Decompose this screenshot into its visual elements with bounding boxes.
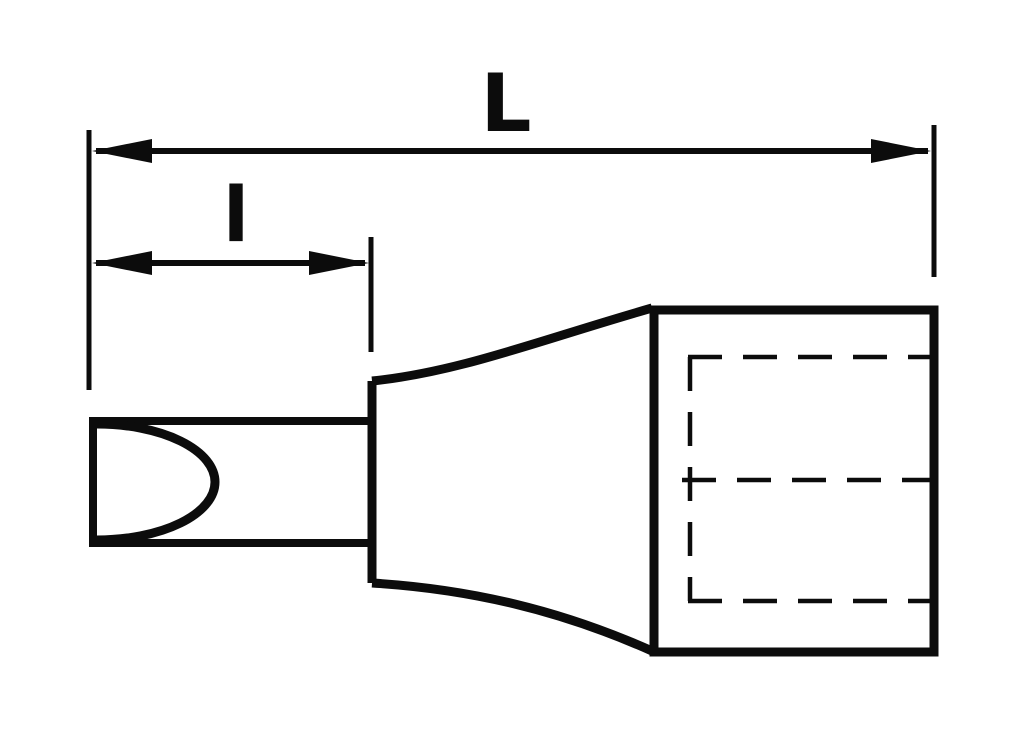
- overall-length-label: L: [481, 57, 532, 150]
- bit-length-label: l: [223, 170, 249, 259]
- drawing-svg: L l: [0, 0, 1024, 737]
- technical-drawing-canvas: L l: [0, 0, 1024, 737]
